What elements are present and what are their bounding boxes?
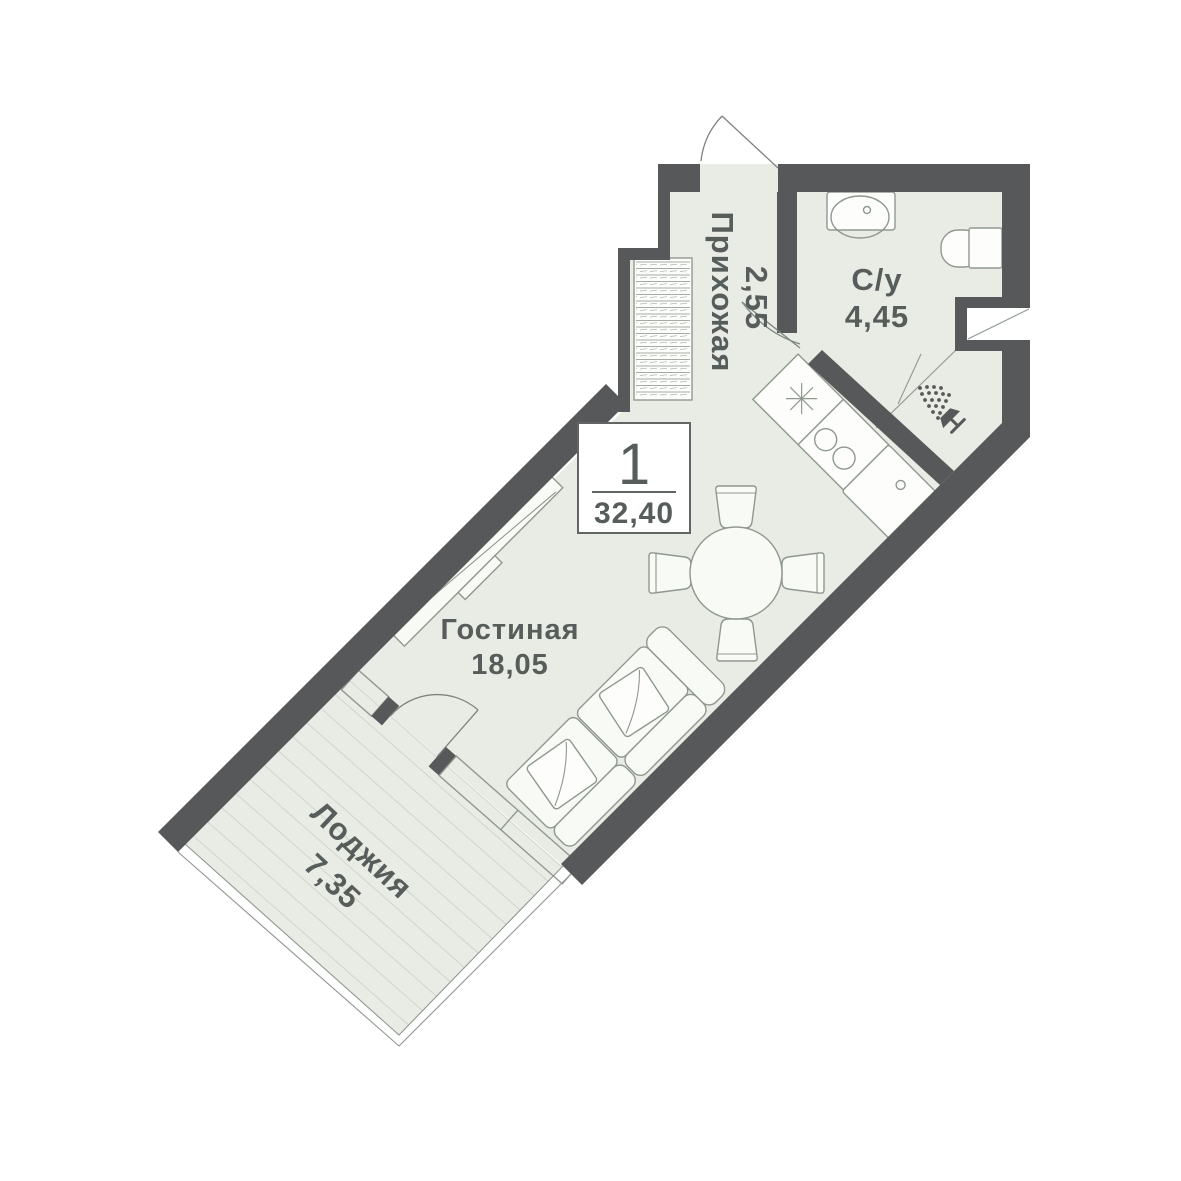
vent-shaft-icon	[955, 297, 1030, 351]
hall-left-wall-upper	[658, 164, 670, 248]
total-area-label: 32,40	[594, 497, 674, 530]
washbasin-counter	[827, 192, 895, 230]
hall-left-wall-step	[618, 248, 670, 260]
room-label-bathroom: С/у	[851, 262, 902, 297]
wardrobe-icon	[634, 258, 692, 400]
chair-icon	[649, 553, 691, 593]
floor-plan-page: 1 32,40 Прихожая 2,55 С/у 4,45 Гостиная …	[0, 0, 1181, 1181]
chair-icon	[717, 619, 757, 661]
room-label-hallway: Прихожая	[705, 212, 740, 373]
apartment-type-badge: 1 32,40	[578, 423, 690, 533]
room-area-hallway: 2,55	[739, 266, 774, 330]
floor-plan-canvas: 1 32,40 Прихожая 2,55 С/у 4,45 Гостиная …	[0, 0, 1181, 1181]
top-wall-right-segment	[778, 164, 1030, 192]
room-area-bathroom: 4,45	[845, 299, 909, 334]
rooms-count-label: 1	[618, 432, 650, 497]
dining-table-icon	[690, 527, 782, 619]
chair-icon	[782, 553, 824, 593]
entrance-door-icon	[701, 116, 778, 168]
room-area-living: 18,05	[471, 649, 549, 681]
entrance-threshold	[700, 164, 778, 192]
hall-left-wall-lower	[618, 260, 630, 412]
toilet-tank	[969, 228, 1002, 268]
chair-icon	[716, 486, 756, 528]
hall-bathroom-partition	[777, 192, 797, 333]
room-label-living: Гостиная	[440, 614, 579, 646]
